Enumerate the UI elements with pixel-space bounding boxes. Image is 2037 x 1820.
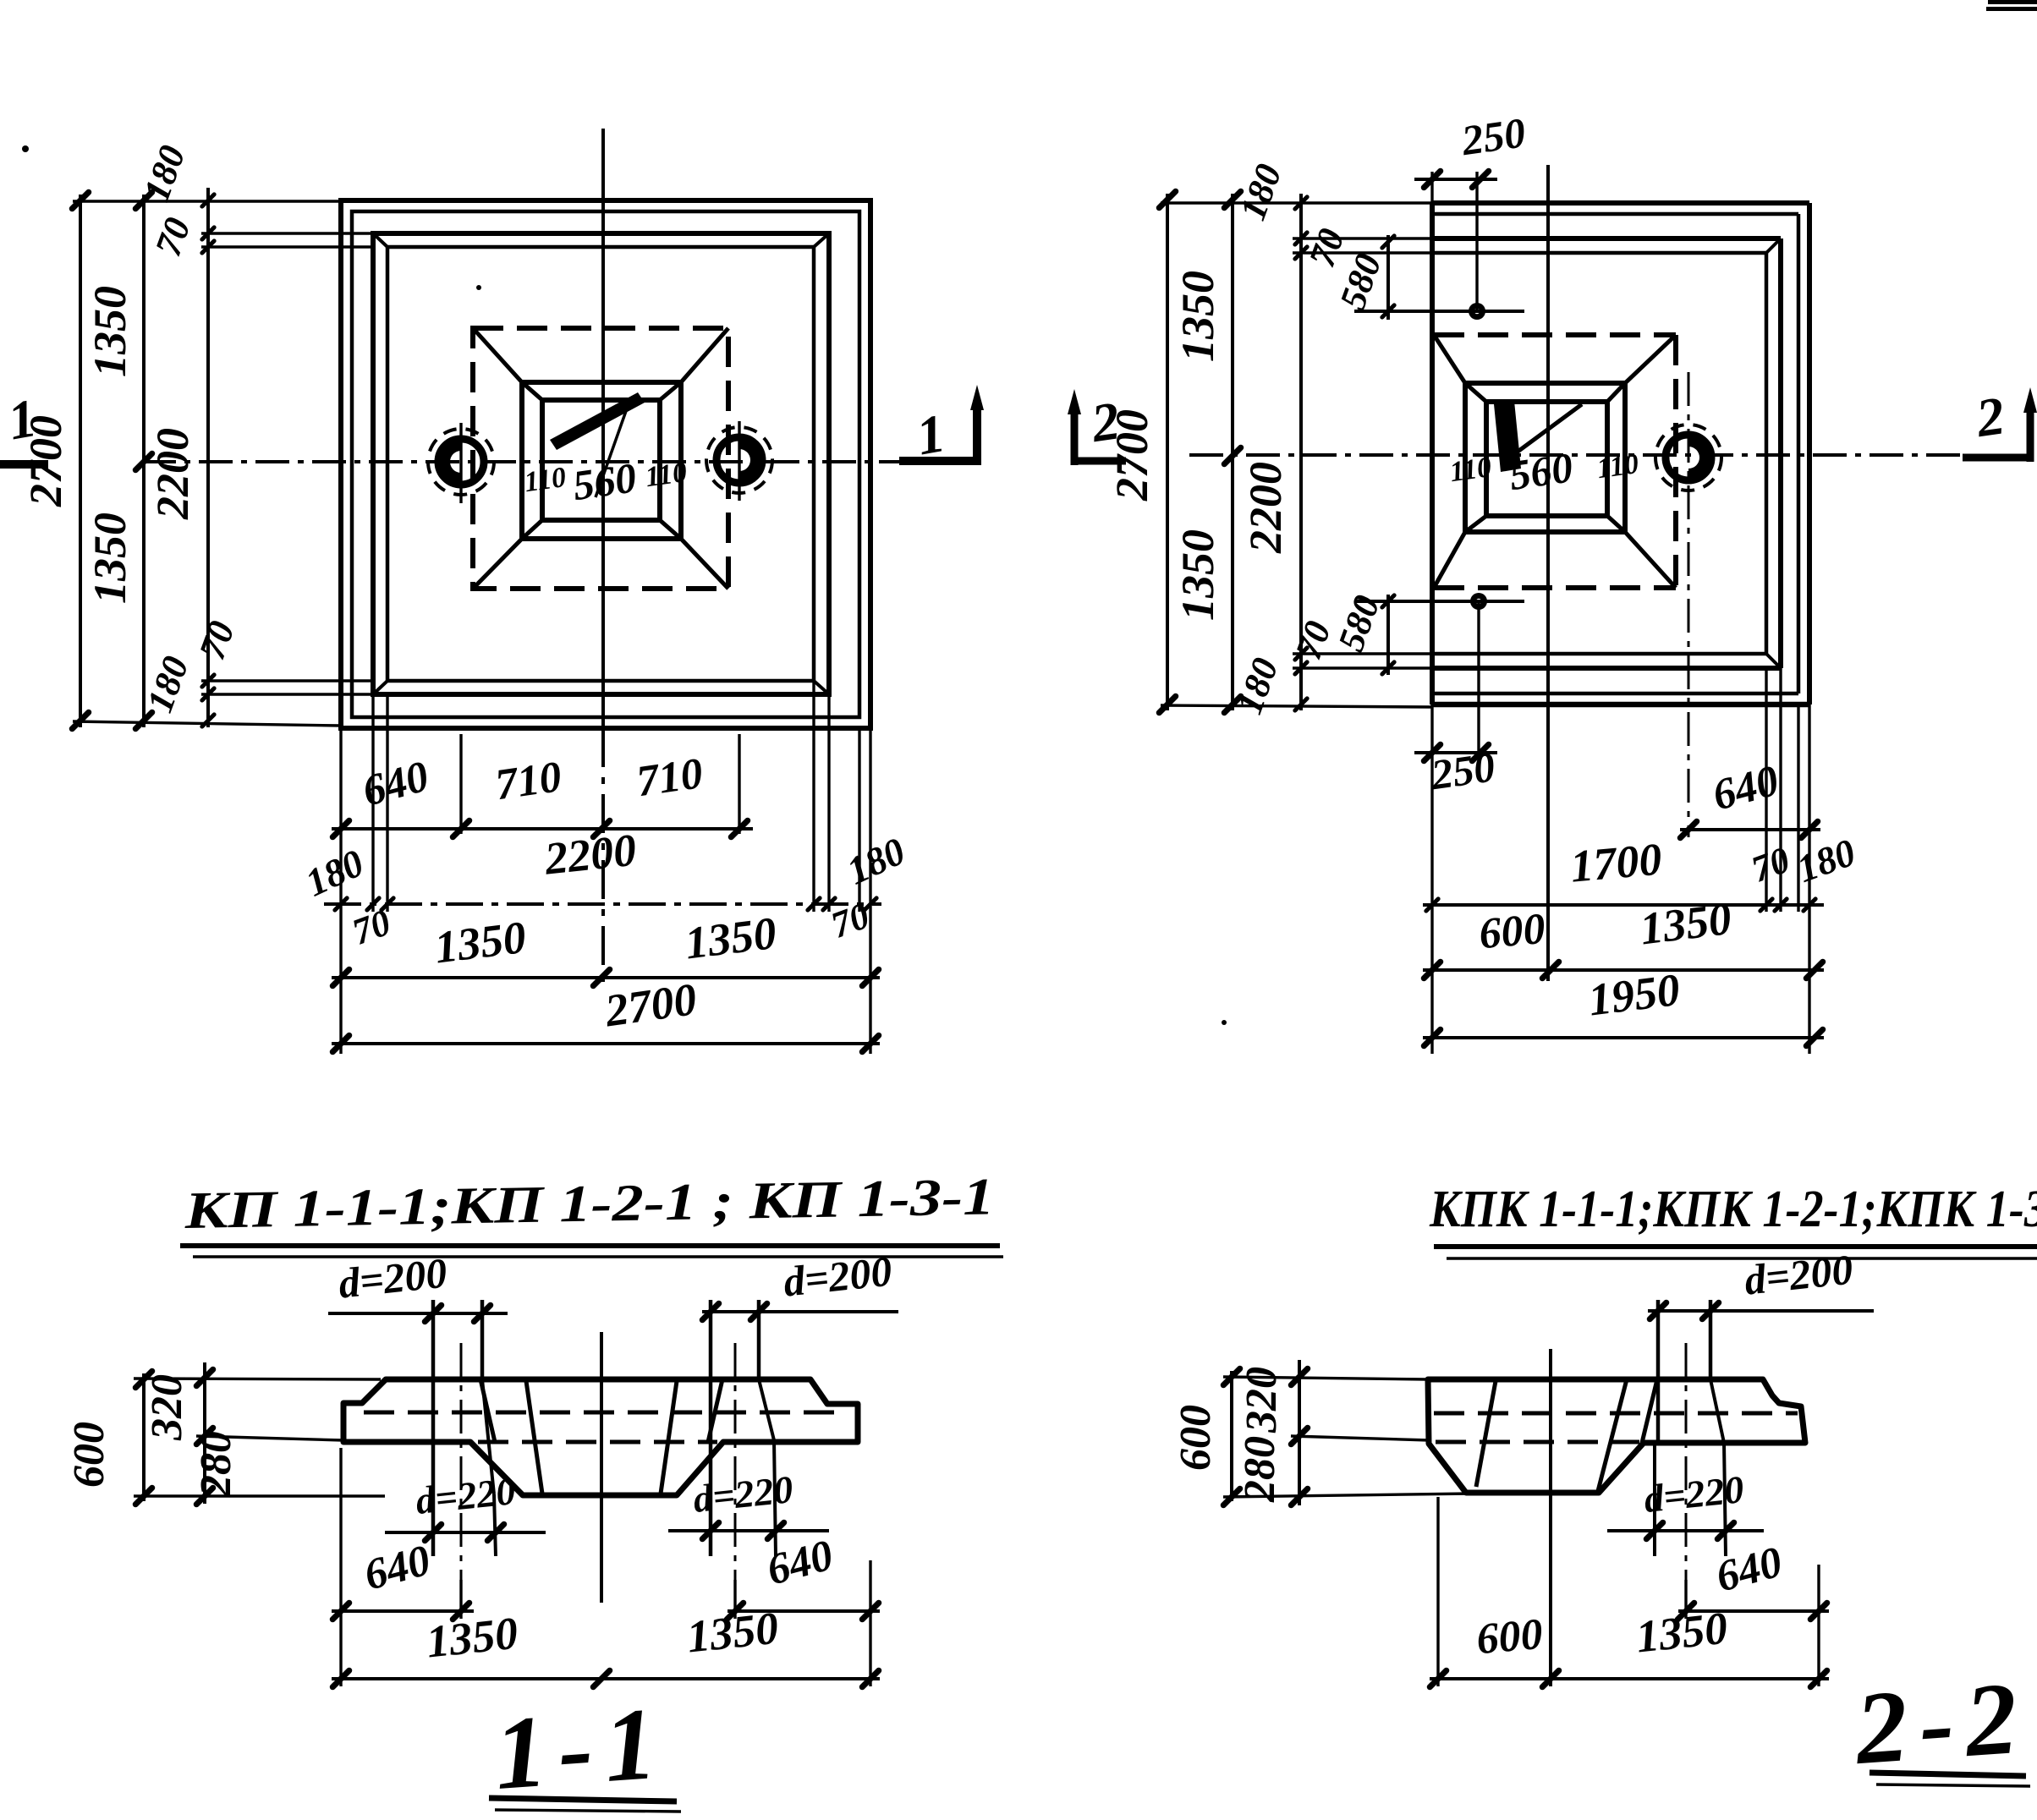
svg-text:600: 600	[1172, 1405, 1220, 1471]
svg-text:250: 250	[1428, 743, 1498, 798]
svg-text:1-1: 1-1	[491, 1686, 672, 1812]
svg-text:2200: 2200	[147, 428, 198, 520]
svg-text:710: 710	[492, 753, 564, 809]
svg-text:1350: 1350	[1172, 271, 1223, 362]
svg-text:560: 560	[1507, 443, 1576, 499]
svg-text:280: 280	[192, 1431, 240, 1498]
svg-text:250: 250	[1458, 108, 1529, 164]
svg-text:2700: 2700	[20, 415, 71, 507]
svg-text:600: 600	[1477, 905, 1547, 959]
svg-text:КПК 1-1-1;КПК 1-2-1;КПК 1-3-1: КПК 1-1-1;КПК 1-2-1;КПК 1-3-1	[1429, 1181, 2037, 1238]
svg-text:1350: 1350	[1633, 1603, 1730, 1663]
svg-text:110: 110	[1448, 452, 1494, 488]
svg-text:600: 600	[1474, 1610, 1545, 1664]
svg-text:1700: 1700	[1568, 833, 1664, 891]
svg-text:2-2: 2-2	[1850, 1660, 2033, 1786]
svg-text:320: 320	[143, 1374, 191, 1441]
svg-text:2700: 2700	[1106, 409, 1157, 502]
svg-text:2200: 2200	[1240, 462, 1291, 554]
svg-text:110: 110	[523, 462, 568, 498]
svg-text:2200: 2200	[541, 825, 639, 885]
svg-text:1350: 1350	[424, 1608, 520, 1668]
svg-text:710: 710	[634, 749, 706, 806]
svg-text:1350: 1350	[1172, 529, 1223, 621]
svg-text:1350: 1350	[85, 286, 135, 377]
svg-text:1350: 1350	[85, 513, 135, 604]
svg-text:600: 600	[65, 1422, 113, 1488]
svg-text:1350: 1350	[684, 1603, 781, 1663]
svg-text:280: 280	[1236, 1436, 1284, 1503]
